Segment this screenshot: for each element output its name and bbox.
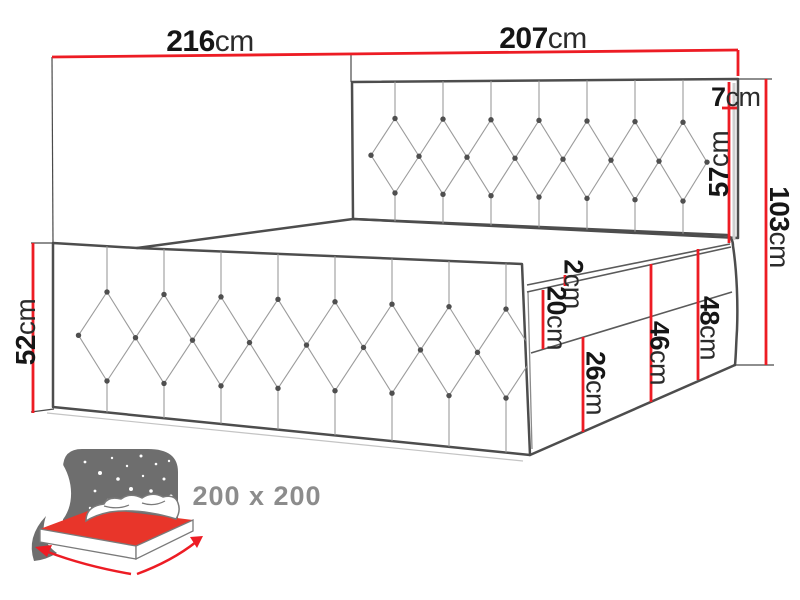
side-panel: [47, 243, 532, 461]
mattress-size-label: 200 x 200: [192, 481, 321, 511]
label-52cm: 52cm: [10, 299, 41, 365]
bed-size-icon: 200 x 200: [0, 435, 322, 574]
bed-size-diagram: 216cm 207cm 7cm 57cm 103cm 52cm 2cm 20cm…: [0, 0, 800, 600]
label-7cm: 7cm: [711, 82, 761, 112]
label-216cm: 216cm: [166, 25, 254, 58]
bed-drawing: [47, 79, 738, 461]
label-57cm: 57cm: [703, 131, 734, 197]
label-20cm: 20cm: [542, 286, 572, 350]
headboard-tufting: [368, 80, 709, 234]
label-103cm: 103cm: [764, 186, 795, 268]
label-46cm: 46cm: [645, 321, 675, 385]
side-panel-tufting: [76, 245, 537, 452]
label-26cm: 26cm: [581, 351, 611, 415]
bed-dimension-diagram-page: 216cm 207cm 7cm 57cm 103cm 52cm 2cm 20cm…: [0, 0, 800, 600]
label-207cm: 207cm: [499, 22, 587, 55]
headboard-panel: [352, 79, 738, 240]
label-48cm: 48cm: [695, 296, 725, 360]
